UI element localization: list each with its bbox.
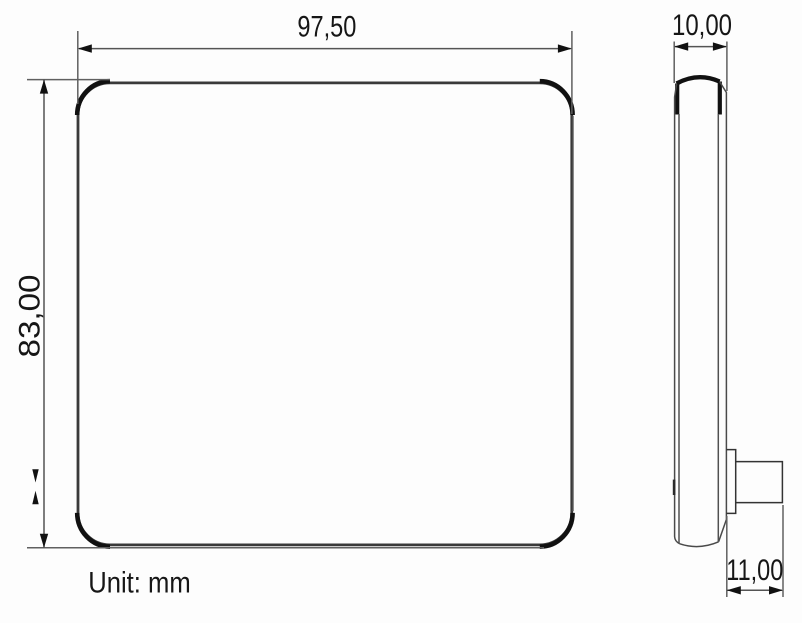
svg-text:11,00: 11,00: [726, 554, 783, 587]
svg-text:Unit: mm: Unit: mm: [88, 566, 191, 599]
svg-text:10,00: 10,00: [672, 9, 732, 42]
svg-text:83,00: 83,00: [13, 275, 46, 358]
svg-text:97,50: 97,50: [297, 10, 356, 43]
